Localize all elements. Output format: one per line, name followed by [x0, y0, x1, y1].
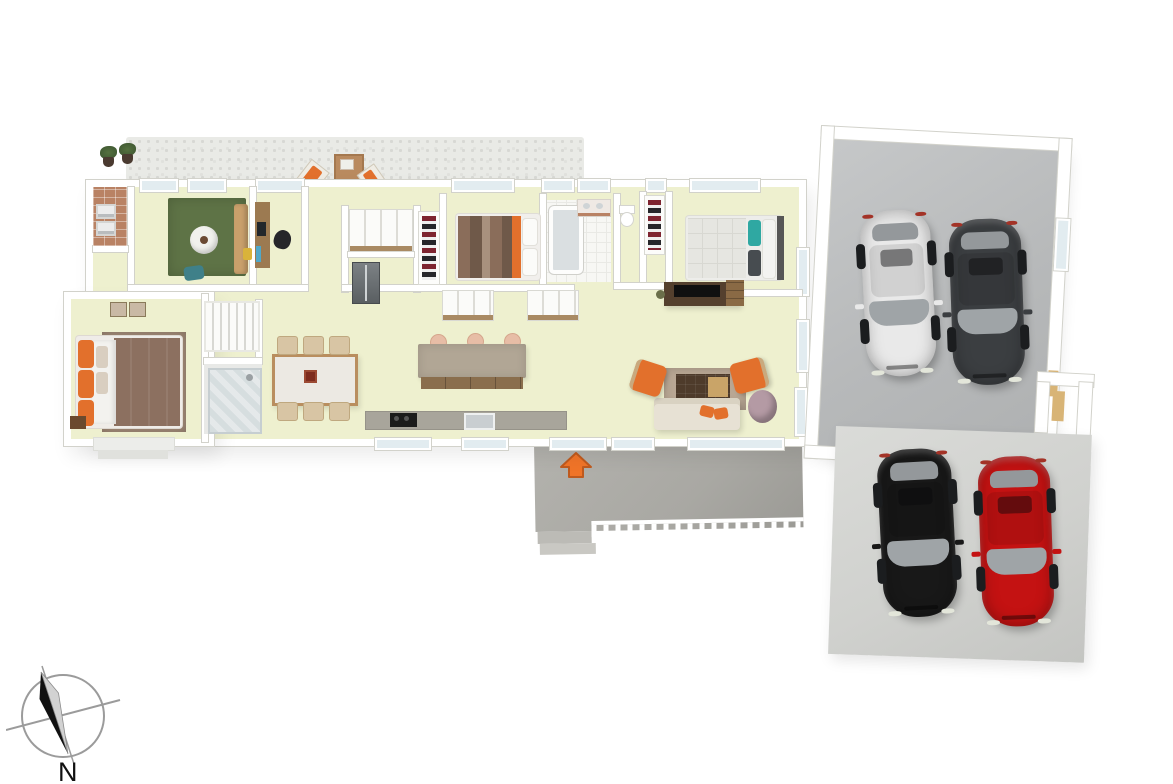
car-wheel: [860, 319, 870, 344]
rear-window: [990, 469, 1038, 488]
window: [578, 179, 610, 192]
shoe-closet: [645, 196, 664, 254]
bedroom3-duvet: [688, 218, 746, 278]
outdoor-tray: [340, 159, 354, 170]
entry-sliding-door: [550, 438, 606, 450]
window: [140, 179, 178, 192]
window: [188, 179, 226, 192]
garage-window: [1054, 218, 1071, 271]
stove-burner: [394, 416, 399, 421]
deck-step: [540, 543, 596, 555]
car-wheel: [1017, 249, 1027, 274]
wall: [348, 252, 414, 257]
sunroof: [880, 248, 914, 267]
orange-pillow: [78, 370, 94, 398]
sunroof: [998, 496, 1032, 515]
window: [256, 179, 304, 192]
lounge-sofa: [234, 204, 248, 274]
car-wheel: [1020, 324, 1030, 349]
car-wheel: [1046, 488, 1056, 513]
dining-chair: [329, 336, 350, 355]
plant-pot: [122, 154, 133, 164]
taillight: [951, 223, 962, 227]
taillight: [936, 450, 947, 455]
car-wheel: [952, 555, 962, 580]
monitor-glow: [256, 246, 261, 262]
toilet-bowl: [621, 213, 633, 226]
dryer: [96, 221, 116, 236]
vanity: [578, 200, 610, 216]
side-mirror: [971, 551, 980, 556]
headlight: [871, 370, 884, 376]
black-car: [870, 445, 965, 621]
deck-railing: [591, 517, 803, 537]
tan-pillow: [96, 372, 108, 394]
table-tray: [708, 377, 728, 397]
car-wheel: [873, 483, 883, 508]
headlight: [1038, 618, 1051, 623]
wall: [128, 187, 134, 288]
sink: [583, 203, 590, 209]
kitchen-island: [418, 344, 526, 378]
dining-chair: [303, 402, 324, 421]
pillow: [523, 249, 537, 275]
side-mirror: [934, 299, 943, 304]
side-mirror: [1052, 548, 1061, 553]
sliding-door: [688, 438, 784, 450]
car-wheel: [1049, 564, 1059, 589]
windshield: [986, 547, 1047, 575]
wall: [128, 285, 308, 291]
dining-chair: [277, 402, 298, 421]
dark-gray-car: [942, 215, 1032, 388]
stove-burner: [404, 416, 409, 421]
headlight: [987, 620, 1000, 625]
car-wheel: [973, 490, 983, 515]
window: [452, 179, 514, 192]
kitchen-sink: [464, 413, 495, 430]
car-wheel: [931, 315, 941, 340]
orange-pillow: [78, 340, 94, 368]
pillow: [523, 219, 537, 245]
window: [646, 179, 666, 192]
window: [462, 438, 508, 450]
car-wheel: [927, 240, 937, 265]
dining-chair: [329, 402, 350, 421]
plant-pot: [103, 157, 114, 167]
white-car: [853, 206, 944, 380]
centerpiece: [304, 370, 317, 383]
side-mirror: [955, 539, 964, 544]
compass-needle-light: [41, 672, 68, 754]
headboard: [777, 216, 784, 280]
fridge-handle: [365, 265, 367, 301]
taillight: [980, 460, 991, 464]
taillight: [915, 212, 926, 217]
headlight: [941, 608, 954, 614]
teal-pillow: [748, 220, 761, 246]
porch-pillar: [1077, 382, 1093, 437]
headlight: [1009, 377, 1022, 382]
red-car: [971, 453, 1061, 630]
car-wheel: [944, 252, 954, 277]
sink: [596, 203, 603, 209]
car-wheel: [856, 244, 866, 269]
side-cabinet: [726, 280, 744, 306]
rear-window: [961, 231, 1009, 250]
side-mirror: [855, 304, 864, 309]
wall-art: [110, 302, 127, 317]
window: [797, 320, 809, 372]
porch-pillar: [1035, 382, 1050, 433]
shower: [208, 368, 262, 434]
windshield: [887, 538, 950, 567]
window: [612, 438, 654, 450]
gray-pillow: [748, 250, 761, 276]
bedroom2-orange-throw: [512, 216, 521, 278]
bathtub: [549, 206, 583, 274]
table-decor: [200, 236, 208, 244]
floor-plan-canvas: N: [0, 0, 1173, 784]
headlight: [958, 378, 971, 383]
wall: [342, 206, 348, 292]
bedroom2-duvet: [458, 216, 512, 278]
pantry-shelf: [350, 210, 412, 251]
rear-window: [890, 461, 939, 481]
car-wheel: [948, 479, 958, 504]
wall: [440, 194, 446, 290]
master-duvet: [114, 338, 180, 426]
taillight: [1006, 221, 1017, 225]
pillow: [763, 220, 775, 278]
nightstand: [70, 416, 86, 429]
island-base: [421, 377, 523, 389]
porch-step: [98, 450, 168, 459]
dining-chair: [303, 336, 324, 355]
stairs: [206, 303, 258, 350]
driveway-group: [828, 426, 1092, 667]
wall: [666, 192, 672, 294]
car-wheel: [947, 327, 957, 352]
accent-chair: [183, 265, 205, 282]
headlight: [888, 611, 901, 617]
taillight: [1035, 458, 1046, 462]
entrance-arrow: [558, 450, 594, 480]
porch-step: [94, 438, 174, 450]
deck-step: [538, 531, 592, 544]
rear-window: [872, 222, 919, 241]
side-mirror: [872, 543, 881, 548]
car-wheel: [877, 559, 887, 584]
bookshelf: [528, 291, 578, 320]
washer: [96, 204, 116, 219]
sunroof: [898, 487, 933, 506]
side-mirror: [1023, 309, 1032, 314]
window: [797, 248, 809, 296]
monitor: [257, 222, 266, 236]
car-wheel: [976, 567, 986, 592]
window: [542, 179, 574, 192]
yellow-cushion: [243, 248, 252, 260]
toilet-tank: [620, 206, 634, 213]
tv-screen: [674, 285, 720, 297]
garage-group: [805, 126, 1072, 471]
north-label: N: [58, 757, 78, 784]
tan-pillow: [96, 346, 108, 368]
side-mirror: [942, 312, 951, 317]
wall: [302, 187, 308, 288]
bookshelf: [443, 291, 493, 320]
wall: [93, 246, 128, 252]
shoe-closet: [419, 212, 439, 284]
wall-art: [129, 302, 146, 317]
egg-chair: [748, 390, 777, 423]
window: [375, 438, 431, 450]
dining-chair: [277, 336, 298, 355]
wall: [540, 194, 546, 288]
compass: N: [6, 654, 126, 784]
garage-porch: [1035, 372, 1098, 441]
shower-head: [246, 374, 253, 381]
sunroof: [969, 257, 1003, 275]
porch-door: [1051, 391, 1065, 422]
headlight: [920, 367, 933, 373]
plant: [656, 290, 665, 299]
window: [690, 179, 760, 192]
